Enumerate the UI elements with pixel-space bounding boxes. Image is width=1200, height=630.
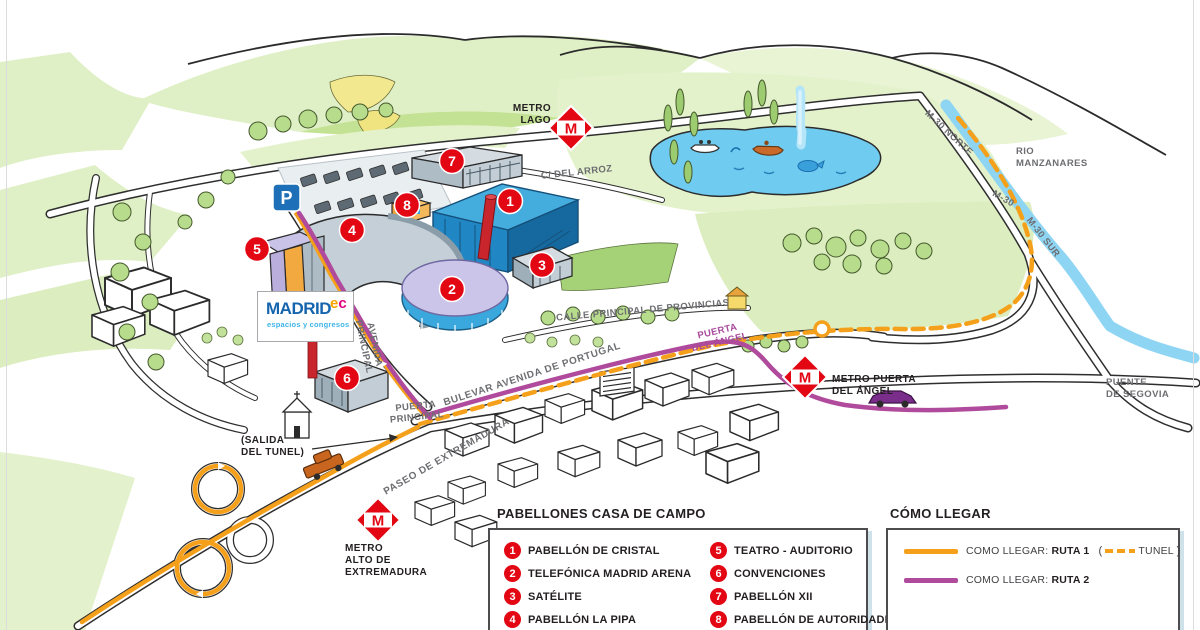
map-marker-2: 2 <box>440 277 465 302</box>
legend-item-6: 6 CONVENCIONES <box>710 565 826 582</box>
legend-item-1: 1 PABELLÓN DE CRISTAL <box>504 542 660 559</box>
page-border-right <box>1193 0 1194 630</box>
logo-tagline: espacios y congresos <box>267 320 349 329</box>
svg-text:DEL TUNEL): DEL TUNEL) <box>241 447 304 458</box>
metro-m-letter: M <box>799 370 812 387</box>
legend-item-4: 4 PABELLÓN LA PIPA <box>504 611 636 628</box>
map-marker-8: 8 <box>395 193 420 218</box>
legend-item-8: 8 PABELLÓN DE AUTORIDADES <box>710 611 900 628</box>
legend-pabellones-box: 1 PABELLÓN DE CRISTAL 2 TELEFÓNICA MADRI… <box>488 528 868 630</box>
sports-field <box>558 243 678 291</box>
metro-m-letter: M <box>372 513 385 530</box>
legend-route-1-row: COMO LLEGAR: RUTA 1 (TUNEL ) <box>904 545 1180 557</box>
route-2-swatch <box>904 578 958 583</box>
svg-text:5: 5 <box>253 241 261 257</box>
metro-puerta-angel-label: METRO PUERTA <box>832 374 916 385</box>
houses-left-cluster <box>92 268 248 384</box>
svg-text:2: 2 <box>448 281 456 297</box>
map-marker-5: 5 <box>245 237 270 262</box>
legend-badge-6: 6 <box>710 565 727 582</box>
logo-ec-text: ec <box>330 295 347 312</box>
legend-badge-7: 7 <box>710 588 727 605</box>
svg-text:EXTREMADURA: EXTREMADURA <box>345 567 427 578</box>
metro-puerta-angel-icon: M <box>783 355 827 399</box>
metro-alto-label: METRO <box>345 543 383 554</box>
map-marker-6: 6 <box>335 366 360 391</box>
svg-text:LAGO: LAGO <box>521 115 552 126</box>
logo-brand-text: MADRID <box>266 299 331 319</box>
salida-tunel-label: (SALIDA <box>241 435 284 446</box>
map-marker-1: 1 <box>498 189 523 214</box>
map-marker-3: 3 <box>530 253 555 278</box>
map-screenshot: M M M P 1 2 3 4 5 6 7 8 METRO LAGO METRO… <box>0 0 1200 630</box>
legend-item-7: 7 PABELLÓN XII <box>710 588 813 605</box>
svg-text:DEL ÁNGEL: DEL ÁNGEL <box>832 384 893 397</box>
metro-m-letter: M <box>565 121 578 138</box>
map-marker-4: 4 <box>340 218 365 243</box>
legend-badge-4: 4 <box>504 611 521 628</box>
legend-badge-1: 1 <box>504 542 521 559</box>
svg-text:ALTO DE: ALTO DE <box>345 555 391 566</box>
parking-letter: P <box>280 188 292 208</box>
svg-text:6: 6 <box>343 370 351 386</box>
page-border-left <box>6 0 7 630</box>
tunnel-dash-swatch <box>1105 549 1135 553</box>
route-roundabout-marker <box>815 322 829 336</box>
svg-text:DE SEGOVIA: DE SEGOVIA <box>1106 389 1169 400</box>
legend-route-2-row: COMO LLEGAR: RUTA 2 <box>904 574 1089 586</box>
svg-text:MANZANARES: MANZANARES <box>1016 158 1088 169</box>
legend-item-3: 3 SATÉLITE <box>504 588 582 605</box>
pabellon-xii-building <box>412 147 522 188</box>
metro-lago-label: METRO <box>513 103 551 114</box>
legend-item-2: 2 TELEFÓNICA MADRID ARENA <box>504 565 691 582</box>
map-marker-7: 7 <box>440 149 465 174</box>
rio-manzanares-label: RIO <box>1016 146 1034 157</box>
svg-text:1: 1 <box>506 193 514 209</box>
puente-segovia-label: PUENTE <box>1106 377 1147 388</box>
svg-text:4: 4 <box>348 222 356 238</box>
svg-text:3: 3 <box>538 257 546 273</box>
church <box>283 391 311 438</box>
legend-badge-2: 2 <box>504 565 521 582</box>
legend-como-llegar-box: COMO LLEGAR: RUTA 1 (TUNEL ) COMO LLEGAR… <box>886 528 1180 630</box>
legend-badge-3: 3 <box>504 588 521 605</box>
legend-item-5: 5 TEATRO - AUDITORIO <box>710 542 853 559</box>
legend-badge-8: 8 <box>710 611 727 628</box>
puerta-principal-label: PUERTA PRINCIPAL <box>388 398 444 426</box>
legend-badge-5: 5 <box>710 542 727 559</box>
route-1-swatch <box>904 549 958 554</box>
svg-text:8: 8 <box>403 197 411 213</box>
metro-alto-icon: M <box>356 498 400 542</box>
legend-pabellones-title: PABELLONES CASA DE CAMPO <box>497 506 706 521</box>
parking-sign: P <box>273 184 300 211</box>
legend-como-llegar-title: CÓMO LLEGAR <box>890 506 991 521</box>
madrid-ec-logo: MADRID ec espacios y congresos <box>257 291 354 342</box>
svg-text:7: 7 <box>448 153 456 169</box>
